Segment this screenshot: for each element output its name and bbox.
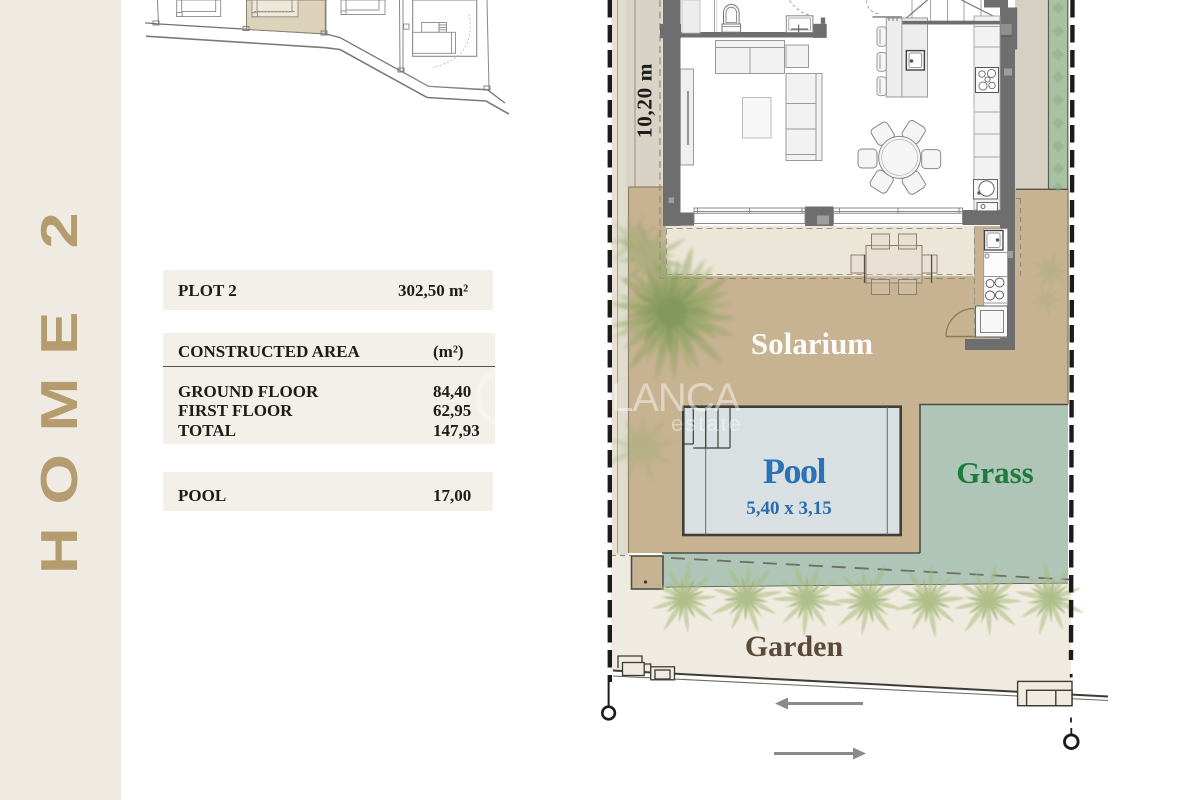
svg-text:estate: estate: [671, 411, 743, 436]
svg-text:Grass: Grass: [956, 455, 1034, 490]
svg-text:Solarium: Solarium: [751, 326, 873, 361]
svg-text:Pool: Pool: [763, 451, 826, 491]
svg-text:Garden: Garden: [745, 630, 844, 663]
svg-text:5,40 x 3,15: 5,40 x 3,15: [746, 498, 832, 519]
svg-text:10,20 m: 10,20 m: [633, 63, 657, 138]
